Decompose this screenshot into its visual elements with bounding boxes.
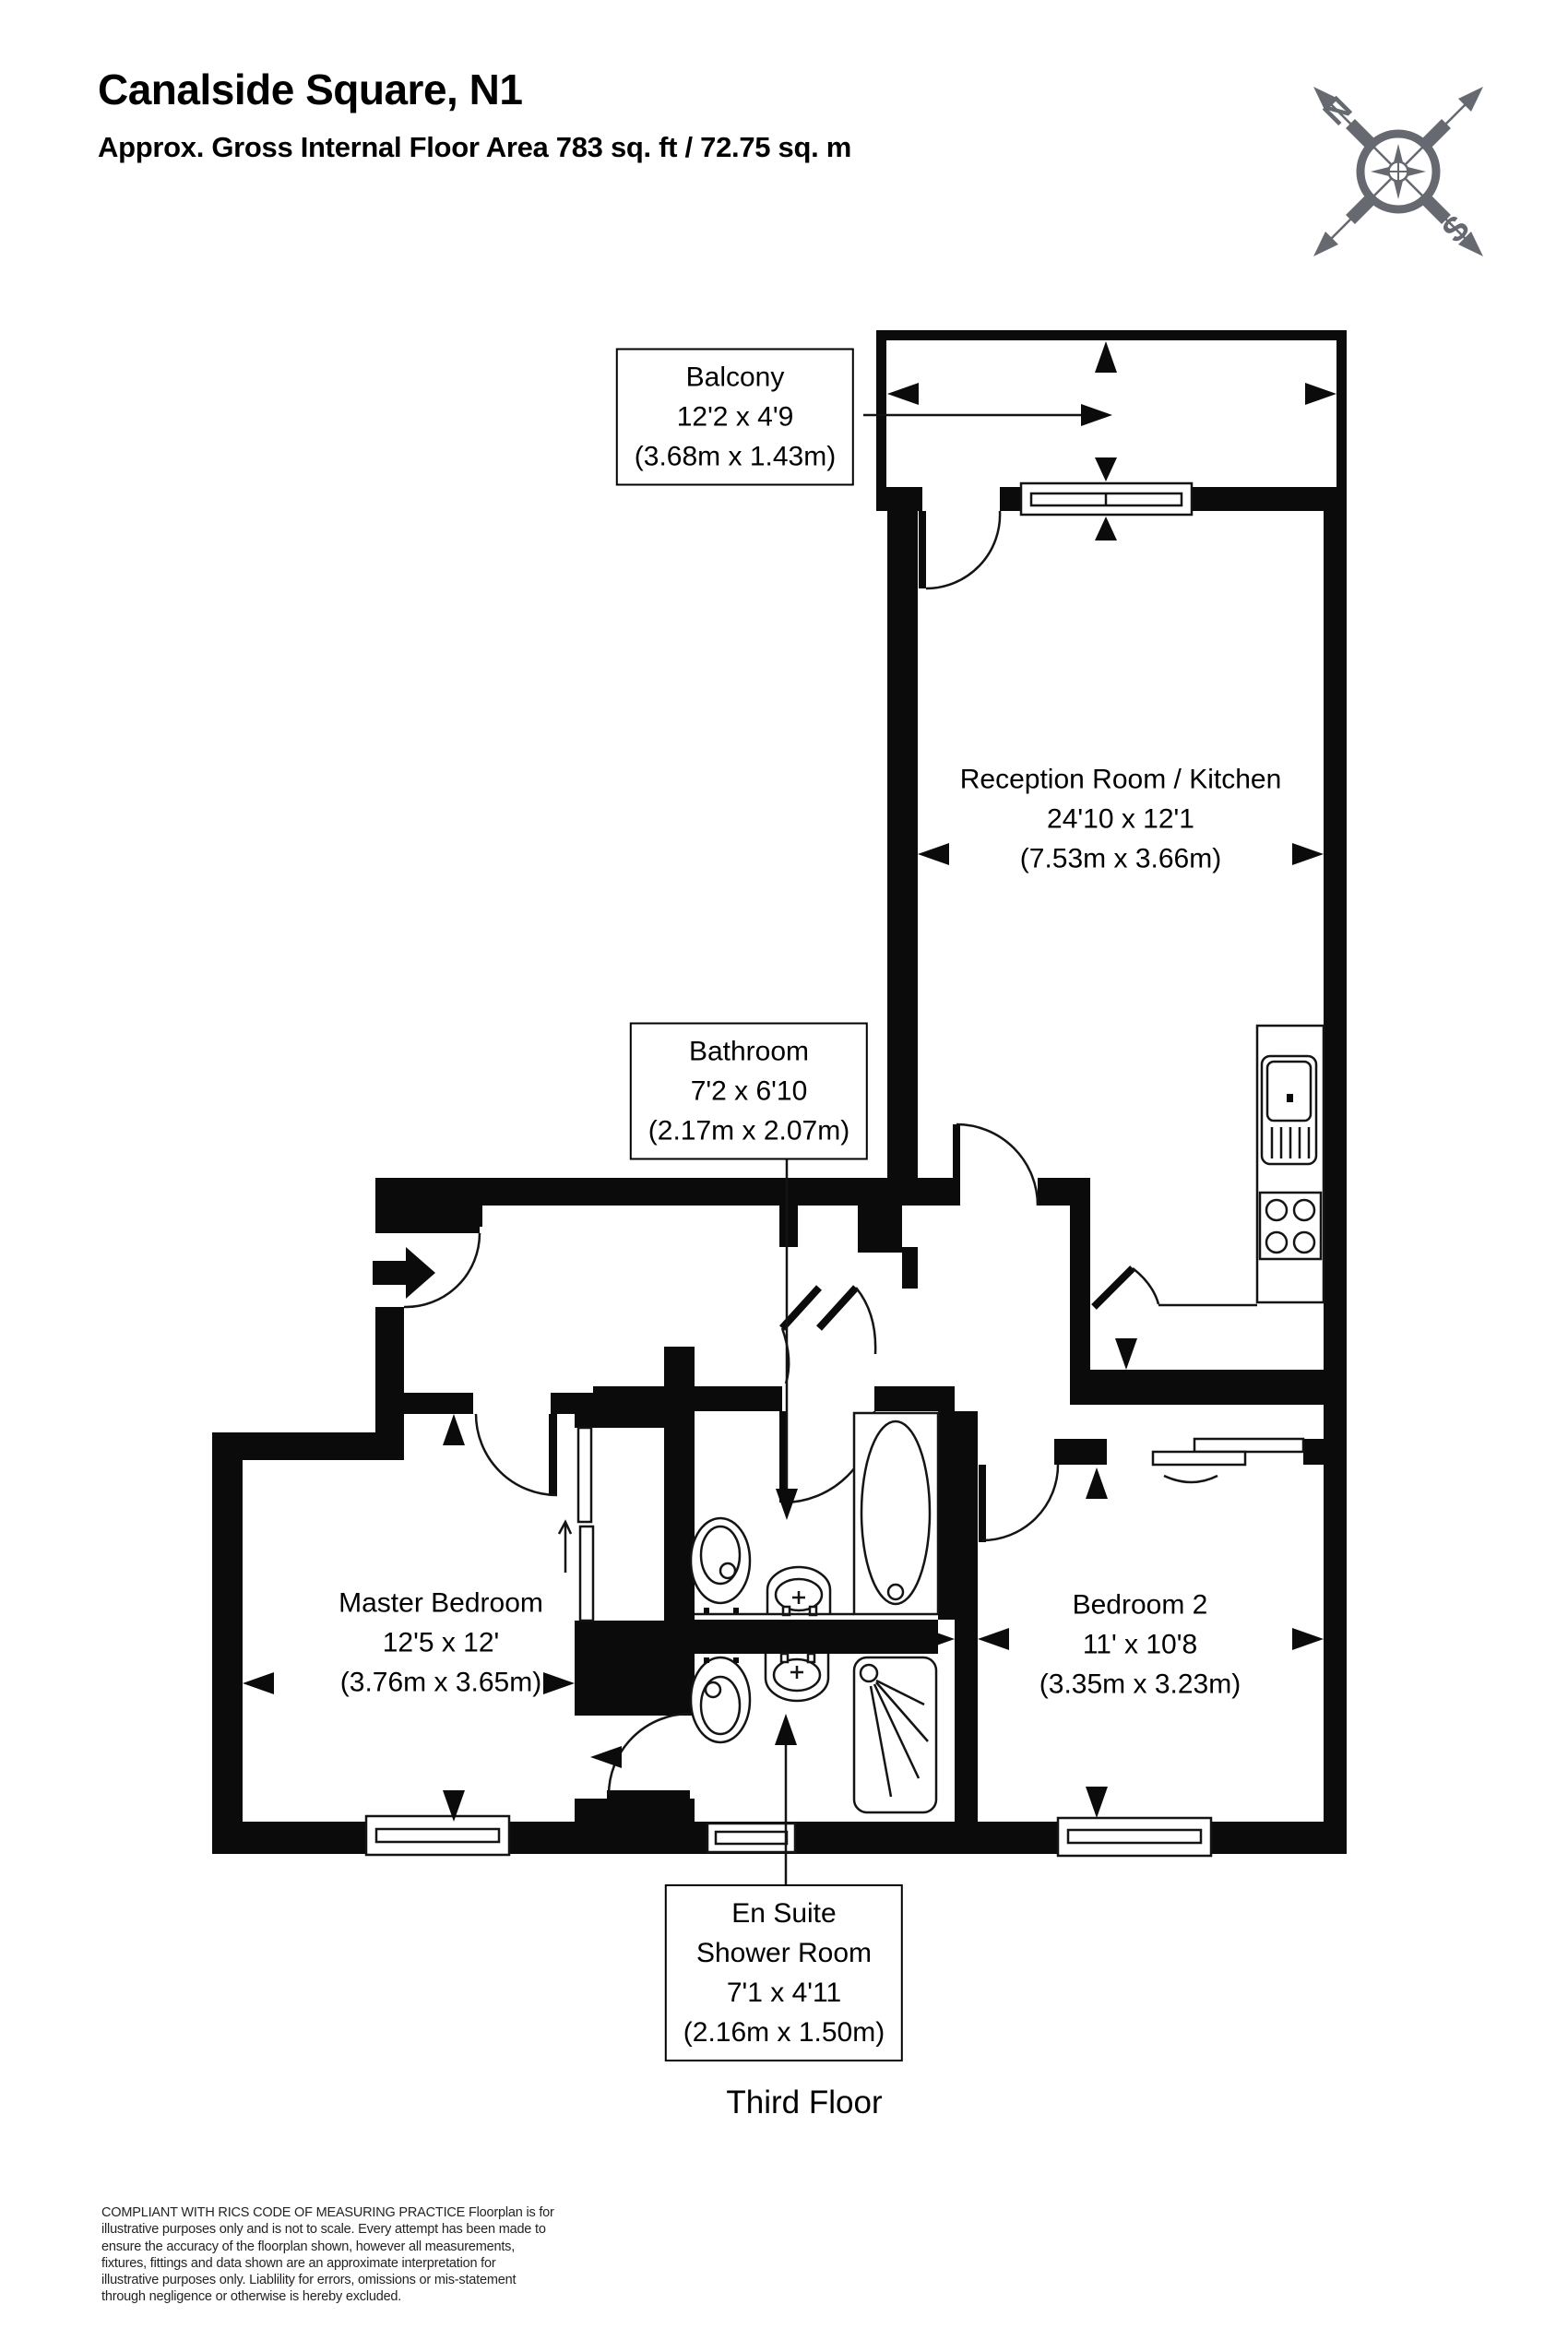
door-balcony <box>919 511 1000 588</box>
wall-balcony-top <box>876 330 1347 340</box>
dim-arrow-right <box>1292 843 1324 865</box>
dim-arrow-down <box>1115 1338 1137 1370</box>
wall-top-c <box>1192 487 1347 511</box>
room-dimensions-imperial: 24'10 x 12'1 <box>960 800 1282 839</box>
wall-top-a <box>876 487 922 511</box>
wall-master-top-right <box>404 1393 473 1414</box>
wall-left <box>212 1432 243 1854</box>
wall-master-doorpost <box>551 1393 593 1414</box>
door-entrance <box>373 1223 480 1307</box>
dim-arrow-down <box>1086 1787 1108 1818</box>
wall-hall-bottom-b <box>874 1386 955 1411</box>
room-dimensions-imperial: 12'5 x 12' <box>339 1623 543 1663</box>
wall-cupboard-a <box>858 1206 902 1253</box>
room-label-bedroom2: Bedroom 2 11' x 10'8 (3.35m x 3.23m) <box>1039 1586 1241 1705</box>
wall-master-right-low <box>575 1799 695 1822</box>
room-dimensions-metric: (2.16m x 1.50m) <box>683 2013 885 2052</box>
dim-arrow-down <box>1095 457 1117 481</box>
dim-arrow-up <box>1095 341 1117 373</box>
wall-closet-stub <box>575 1411 593 1428</box>
room-dimensions-imperial: 12'2 x 4'9 <box>635 398 836 437</box>
door-leaf <box>953 1124 960 1206</box>
window-bedroom2 <box>1058 1818 1211 1856</box>
kitchen-fixtures <box>1257 1026 1324 1302</box>
floorplan-page: N S Canalside Square, N1 Approx. Gross I… <box>0 0 1568 2352</box>
dim-arrow-right <box>543 1672 575 1694</box>
ensuite-fixtures <box>691 1654 936 1812</box>
room-dimensions-imperial: 7'1 x 4'11 <box>683 1973 885 2013</box>
room-label-bathroom: Bathroom 7'2 x 6'10 (2.17m x 2.07m) <box>630 1023 868 1160</box>
kitchen-hob <box>1260 1193 1321 1259</box>
dim-arrow-right <box>923 1628 955 1650</box>
kitchen-sink <box>1262 1056 1316 1164</box>
door-leaf <box>919 511 926 588</box>
basin-bathroom <box>767 1567 830 1615</box>
door-swing-arc <box>982 1465 1058 1540</box>
door-swing-arc <box>926 511 1000 588</box>
door-bedroom2 <box>979 1465 1058 1542</box>
wall-bath-right-block <box>938 1411 978 1468</box>
wall-hall-top-b <box>1038 1178 1073 1206</box>
hall-cupboard-doors <box>782 1288 875 1384</box>
door-leaf <box>404 1223 480 1233</box>
dim-arrow-right <box>1305 383 1336 405</box>
shower-ensuite <box>854 1657 936 1812</box>
wall-entry-upper <box>375 1178 404 1233</box>
wall-hall-top-a <box>404 1178 956 1206</box>
wall-bedroom2-top <box>1070 1370 1347 1405</box>
balcony-leader-head <box>1081 404 1112 426</box>
wall-cupboard-b <box>902 1247 918 1289</box>
room-label-master-bedroom: Master Bedroom 12'5 x 12' (3.76m x 3.65m… <box>339 1584 543 1703</box>
door-swing-arc <box>476 1414 557 1495</box>
wall-ensuite-right <box>955 1468 978 1822</box>
compass-rose: N S <box>1313 87 1483 256</box>
wall-balcony-left <box>876 330 886 497</box>
room-name: Bathroom <box>648 1032 849 1072</box>
door-reception-inner <box>1094 1268 1257 1307</box>
master-wardrobe-sliding-doors <box>559 1428 593 1621</box>
dim-arrow-left <box>887 383 919 405</box>
room-name: En Suite <box>683 1894 885 1933</box>
room-dimensions-metric: (2.17m x 2.07m) <box>648 1111 849 1151</box>
wall-hall-bottom-a <box>695 1386 782 1411</box>
toilet-ensuite <box>691 1657 750 1742</box>
door-leaf <box>819 1288 856 1328</box>
disclaimer-text: COMPLIANT WITH RICS CODE OF MEASURING PR… <box>101 2204 555 2306</box>
wall-master-top-left <box>212 1432 404 1460</box>
room-dimensions-imperial: 7'2 x 6'10 <box>648 1072 849 1111</box>
dim-arrow-right <box>1292 1628 1324 1650</box>
room-dimensions-metric: (3.35m x 3.23m) <box>1039 1665 1241 1705</box>
floor-label: Third Floor <box>726 2085 882 2121</box>
dim-arrow-left <box>918 843 949 865</box>
door-swing-arc <box>956 1124 1038 1206</box>
wall-bathroom-left <box>664 1347 695 1654</box>
wall-top-b <box>1000 487 1021 511</box>
room-dimensions-metric: (3.76m x 3.65m) <box>339 1663 543 1703</box>
door-leaf <box>1094 1268 1133 1307</box>
bathroom-leader-head <box>776 1489 798 1520</box>
dim-arrow-up <box>1095 517 1117 540</box>
door-leaf <box>979 1465 986 1542</box>
dim-arrow-left <box>590 1746 622 1768</box>
door-swing-arc <box>1133 1268 1158 1304</box>
wall-balcony-right <box>1336 330 1347 497</box>
dim-arrow-up <box>1086 1467 1108 1499</box>
basin-ensuite <box>766 1654 828 1701</box>
wall-bath-ensuite-divider <box>695 1620 938 1654</box>
door-leaf <box>607 1790 690 1800</box>
dim-arrow-up <box>443 1414 465 1445</box>
bedroom2-wardrobe-sliding-doors <box>1153 1439 1303 1482</box>
room-name: Reception Room / Kitchen <box>960 760 1282 800</box>
ensuite-leader-head <box>775 1714 797 1745</box>
wall-right <box>1324 511 1347 1854</box>
page-subtitle: Approx. Gross Internal Floor Area 783 sq… <box>98 131 851 164</box>
room-name: Bedroom 2 <box>1039 1586 1241 1625</box>
toilet-bathroom <box>691 1518 750 1613</box>
dim-arrow-left <box>978 1628 1009 1650</box>
wall-hall-stub <box>779 1206 798 1247</box>
window-ensuite <box>707 1823 795 1852</box>
bathroom-fixtures <box>691 1413 938 1615</box>
room-name-line2: Shower Room <box>683 1933 885 1973</box>
window-master-bedroom <box>366 1816 509 1855</box>
window-reception <box>1021 483 1192 515</box>
room-name: Master Bedroom <box>339 1584 543 1623</box>
wall-bedroom2-lip-right <box>1303 1439 1325 1465</box>
wall-bedroom2-lip-left <box>1054 1439 1107 1465</box>
room-label-ensuite: En Suite Shower Room 7'1 x 4'11 (2.16m x… <box>665 1884 903 2061</box>
dim-arrow-left <box>243 1672 274 1694</box>
entrance-arrow-head <box>406 1247 435 1299</box>
door-master-bedroom <box>476 1414 557 1495</box>
wall-reception-left <box>887 511 918 1178</box>
room-name: Balcony <box>635 358 836 398</box>
room-dimensions-metric: (7.53m x 3.66m) <box>960 839 1282 879</box>
room-dimensions-metric: (3.68m x 1.43m) <box>635 437 836 477</box>
page-title: Canalside Square, N1 <box>98 65 522 114</box>
door-leaf <box>549 1414 557 1495</box>
door-hall-to-reception <box>953 1124 1038 1206</box>
wall-bath-right <box>938 1468 955 1620</box>
room-dimensions-imperial: 11' x 10'8 <box>1039 1625 1241 1665</box>
room-label-balcony: Balcony 12'2 x 4'9 (3.68m x 1.43m) <box>616 349 854 486</box>
door-swing-arc <box>856 1288 875 1354</box>
room-label-reception: Reception Room / Kitchen 24'10 x 12'1 (7… <box>960 760 1282 879</box>
entrance-arrow-tail <box>373 1261 406 1285</box>
bathtub <box>854 1413 938 1614</box>
